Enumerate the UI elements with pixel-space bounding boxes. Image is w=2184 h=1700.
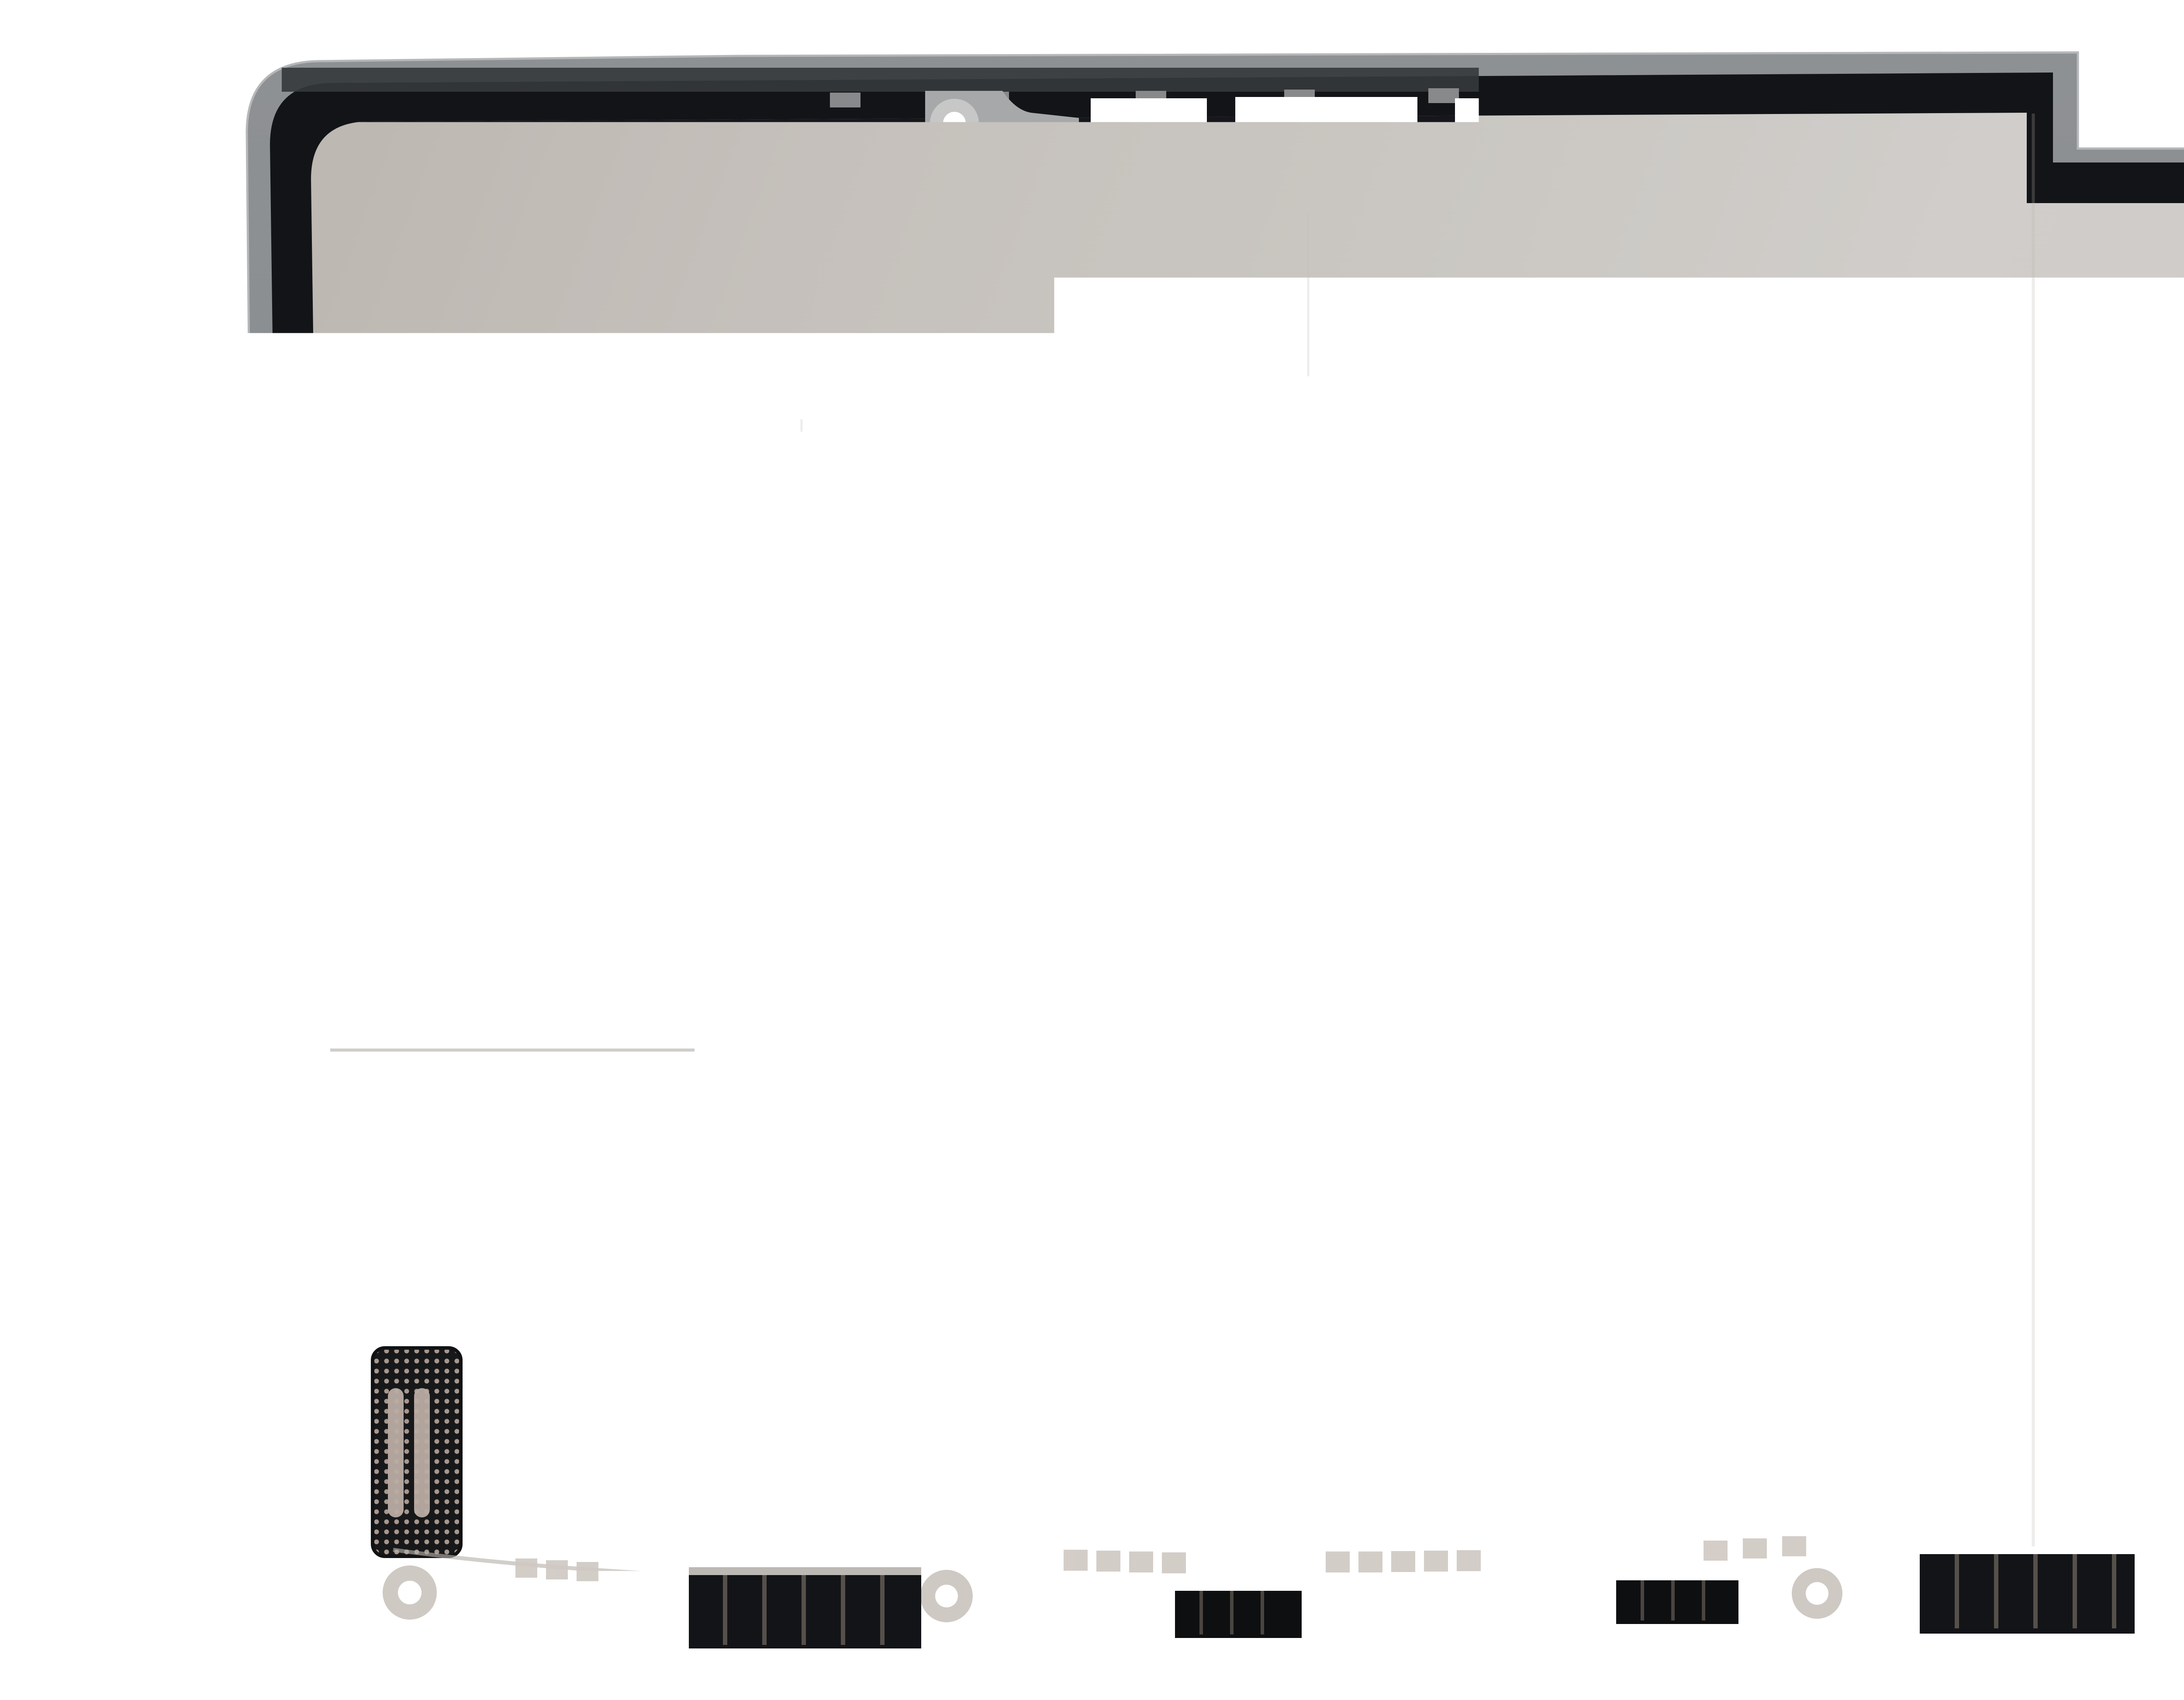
- svg-text:21: 21: [1734, 553, 1748, 567]
- svg-text:20: 20: [1734, 541, 1748, 555]
- svg-text:6: 6: [1829, 510, 1836, 523]
- svg-text:2: 2: [1777, 510, 1784, 523]
- svg-text:13NX02A1P10X12: 13NX02A1P10X12: [1652, 445, 1839, 482]
- svg-text:11: 11: [1892, 510, 1905, 523]
- svg-text:9: 9: [1869, 510, 1876, 523]
- svg-text:4: 4: [1803, 510, 1810, 523]
- svg-text:1: 1: [1764, 510, 1771, 523]
- svg-text:19: 19: [1734, 526, 1748, 540]
- svg-text:0B 1955 3328: 0B 1955 3328: [819, 452, 895, 470]
- svg-text:13N1-86A0A01: 13N1-86A0A01: [819, 435, 898, 453]
- svg-text:PARTS: PARTS: [1201, 843, 1518, 1002]
- svg-text:5: 5: [1816, 510, 1823, 523]
- svg-text:3: 3: [1790, 510, 1797, 523]
- svg-text:REV: REV: [1734, 491, 1759, 505]
- svg-text:C204EE #2-1: C204EE #2-1: [923, 318, 1092, 356]
- svg-text:7: 7: [1842, 510, 1849, 523]
- svg-text:8: 8: [1856, 510, 1863, 523]
- svg-text:7: 7: [1673, 518, 1689, 550]
- svg-text:10: 10: [1879, 510, 1893, 523]
- svg-text:12: 12: [1905, 510, 1919, 523]
